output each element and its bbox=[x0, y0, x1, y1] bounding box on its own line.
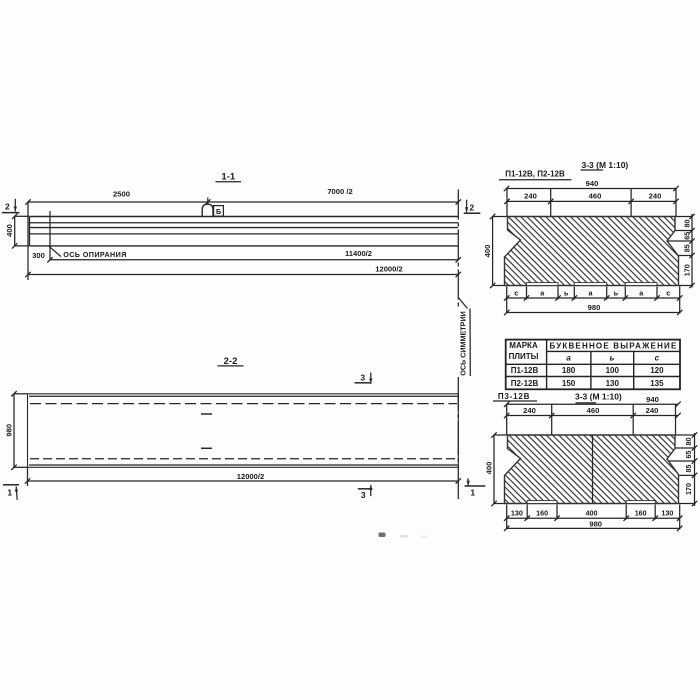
svg-text:ПЛИТЫ: ПЛИТЫ bbox=[509, 352, 539, 361]
svg-text:2500: 2500 bbox=[113, 190, 130, 199]
svg-text:85: 85 bbox=[684, 465, 693, 473]
svg-text:2-2: 2-2 bbox=[224, 356, 238, 367]
svg-text:940: 940 bbox=[646, 395, 659, 404]
svg-text:240: 240 bbox=[649, 192, 662, 201]
svg-text:3-3 (М 1:10): 3-3 (М 1:10) bbox=[575, 392, 622, 402]
svg-text:БУКВЕННОЕ ВЫРАЖЕНИЕ: БУКВЕННОЕ ВЫРАЖЕНИЕ bbox=[549, 341, 677, 350]
svg-text:с: с bbox=[655, 354, 660, 363]
svg-text:400: 400 bbox=[484, 462, 493, 475]
svg-text:3-3 (М 1:10): 3-3 (М 1:10) bbox=[582, 160, 629, 170]
svg-text:2: 2 bbox=[469, 202, 474, 212]
svg-text:12000/2: 12000/2 bbox=[237, 472, 264, 481]
svg-text:150: 150 bbox=[562, 379, 576, 388]
svg-text:П1-12В: П1-12В bbox=[511, 366, 539, 375]
svg-text:ОСЬ СИММЕТРИИ: ОСЬ СИММЕТРИИ bbox=[458, 311, 467, 376]
svg-text:240: 240 bbox=[524, 192, 537, 201]
svg-text:100: 100 bbox=[606, 366, 620, 375]
svg-text:160: 160 bbox=[536, 508, 548, 517]
svg-text:ь: ь bbox=[610, 354, 615, 363]
svg-text:а: а bbox=[566, 354, 571, 363]
svg-text:300: 300 bbox=[32, 251, 45, 260]
svg-text:ь: ь bbox=[614, 288, 619, 297]
svg-text:Б: Б bbox=[216, 207, 221, 216]
svg-text:85: 85 bbox=[682, 244, 691, 252]
svg-text:3: 3 bbox=[360, 373, 365, 383]
svg-text:ь: ь bbox=[564, 288, 569, 297]
svg-text:МАРКА: МАРКА bbox=[509, 341, 538, 350]
svg-text:135: 135 bbox=[650, 379, 664, 388]
svg-text:П3-12В: П3-12В bbox=[498, 392, 530, 401]
svg-text:с: с bbox=[514, 288, 518, 297]
svg-text:П1-12В, П2-12В: П1-12В, П2-12В bbox=[505, 169, 565, 178]
svg-text:170: 170 bbox=[682, 264, 691, 276]
svg-text:460: 460 bbox=[589, 192, 602, 201]
svg-text:65: 65 bbox=[684, 451, 693, 459]
svg-text:1: 1 bbox=[470, 488, 475, 498]
svg-text:980: 980 bbox=[589, 520, 602, 529]
svg-text:180: 180 bbox=[562, 366, 576, 375]
svg-text:400: 400 bbox=[483, 245, 492, 258]
svg-text:12000/2: 12000/2 bbox=[375, 265, 402, 274]
svg-text:130: 130 bbox=[661, 508, 673, 517]
svg-text:240: 240 bbox=[523, 406, 536, 415]
svg-text:160: 160 bbox=[635, 508, 647, 517]
svg-text:65: 65 bbox=[682, 232, 691, 240]
svg-text:2: 2 bbox=[5, 202, 10, 212]
svg-text:1-1: 1-1 bbox=[221, 171, 235, 182]
svg-text:130: 130 bbox=[606, 379, 620, 388]
svg-text:П2-12В: П2-12В bbox=[511, 379, 539, 388]
svg-text:400: 400 bbox=[586, 508, 598, 517]
svg-text:с: с bbox=[666, 288, 670, 297]
svg-text:1: 1 bbox=[7, 487, 12, 497]
svg-text:980: 980 bbox=[588, 303, 601, 312]
svg-text:80: 80 bbox=[682, 220, 691, 228]
svg-text:940: 940 bbox=[586, 179, 599, 188]
svg-text:170: 170 bbox=[684, 483, 693, 495]
svg-text:11400/2: 11400/2 bbox=[345, 249, 372, 258]
svg-text:130: 130 bbox=[511, 508, 523, 517]
svg-text:ОСЬ ОПИРАНИЯ: ОСЬ ОПИРАНИЯ bbox=[63, 250, 127, 259]
svg-text:120: 120 bbox=[650, 366, 664, 375]
svg-text:240: 240 bbox=[646, 406, 659, 415]
svg-text:80: 80 bbox=[684, 438, 693, 446]
svg-text:7000 /2: 7000 /2 bbox=[327, 187, 352, 196]
svg-text:980: 980 bbox=[4, 424, 13, 437]
svg-text:3: 3 bbox=[361, 490, 366, 500]
svg-text:400: 400 bbox=[5, 224, 14, 237]
svg-text:460: 460 bbox=[587, 406, 600, 415]
